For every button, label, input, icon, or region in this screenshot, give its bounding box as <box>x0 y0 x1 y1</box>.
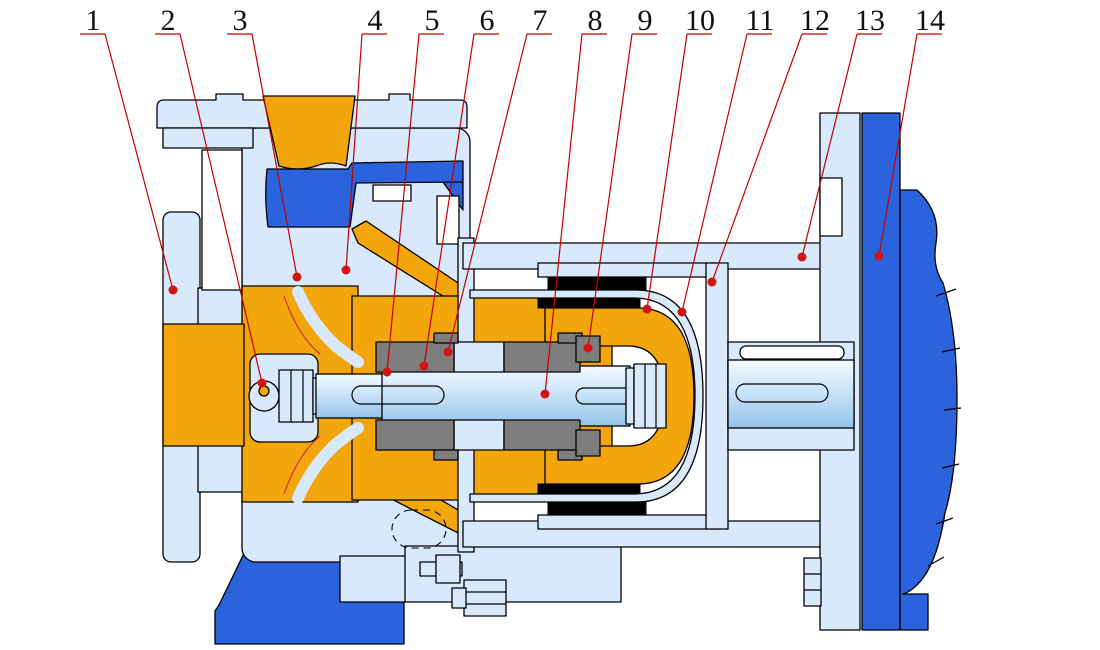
thrust-ring-bottom <box>576 430 600 456</box>
leader-dot <box>342 266 351 275</box>
leader-line <box>105 34 173 290</box>
bearing-key-top <box>434 333 458 343</box>
callout-number: 3 <box>233 4 248 37</box>
leader-dot <box>678 308 687 317</box>
callout-number: 4 <box>368 4 383 37</box>
bearing-key-bottom <box>434 450 458 460</box>
leader-dot <box>420 362 429 371</box>
callout-number: 2 <box>161 4 176 37</box>
discharge-passage <box>263 96 355 169</box>
pump-shaft-front <box>316 374 386 418</box>
leader-dot <box>258 379 267 388</box>
motor-flange <box>862 113 900 630</box>
bracket-plate-notch <box>820 178 842 236</box>
outer-magnets-bottom <box>548 502 646 515</box>
callout-number: 9 <box>638 4 653 37</box>
leader-dot <box>541 390 550 399</box>
shaft-end-washer <box>626 368 634 424</box>
leader-dot <box>798 253 807 262</box>
motor-shaft <box>728 360 854 428</box>
hub-balance-slot <box>740 346 844 359</box>
leader-dot <box>169 286 178 295</box>
bracket-bolt <box>804 558 821 606</box>
casing-void <box>202 150 242 290</box>
drawing-canvas: 1234567891011121314 <box>0 0 1100 650</box>
outer-rotor-rim-bottom <box>538 515 720 529</box>
foot-bolt-head <box>464 580 506 616</box>
callout-number: 12 <box>800 4 830 37</box>
drain-nut <box>436 555 460 583</box>
callout-number: 13 <box>855 4 885 37</box>
suction-passage <box>163 324 244 446</box>
leader-dot <box>643 305 652 314</box>
callout-number: 14 <box>915 4 945 37</box>
impeller-nut <box>279 370 313 422</box>
foot-bolt-tip <box>452 588 466 608</box>
leader-dot <box>875 252 884 261</box>
bearing-bottom-left <box>376 420 454 450</box>
bearing-top-right <box>504 342 580 372</box>
pump-shaft <box>382 366 630 426</box>
outer-rotor-disc <box>706 263 728 529</box>
leader-dot <box>708 278 717 287</box>
leader-dot <box>444 348 453 357</box>
callout-number: 10 <box>685 4 715 37</box>
callout-number: 6 <box>480 4 495 37</box>
bearing-bottom-right <box>504 420 580 450</box>
leader-dot <box>383 368 392 377</box>
callout-number: 1 <box>86 4 101 37</box>
leader-dot <box>293 273 302 282</box>
callout-1: 1 <box>80 4 178 295</box>
pump-sectional-drawing: 1234567891011121314 <box>0 0 1100 650</box>
casing-bottom-wall <box>340 556 406 602</box>
cover-gap-void <box>373 185 411 201</box>
leader-dot <box>584 344 593 353</box>
shaft-castle-nut <box>634 364 666 428</box>
discharge-flange-step <box>163 128 253 148</box>
impeller-nut-pin <box>259 386 269 396</box>
bearing-sleeve-top <box>454 342 504 372</box>
bearing-sleeve-bottom <box>454 420 504 450</box>
callout-number: 8 <box>588 4 603 37</box>
callout-number: 5 <box>425 4 440 37</box>
callout-number: 7 <box>533 4 548 37</box>
callout-number: 11 <box>746 4 775 37</box>
